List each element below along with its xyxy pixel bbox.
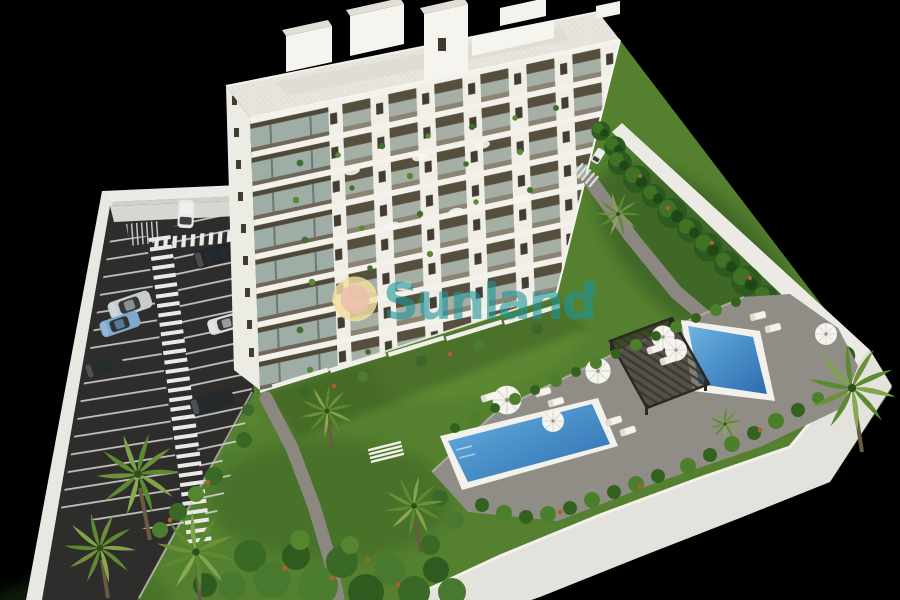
architectural-render: Sunland ® <box>0 0 900 600</box>
parasol <box>665 339 687 361</box>
render-canvas: Sunland ® <box>0 0 900 600</box>
corner-balconies <box>250 101 339 410</box>
watermark-text: Sunland <box>383 273 595 331</box>
parasol <box>542 410 564 432</box>
sun-logo-inner <box>341 285 370 314</box>
registered-mark: ® <box>585 281 599 297</box>
car <box>177 200 194 229</box>
parasol <box>815 323 837 345</box>
